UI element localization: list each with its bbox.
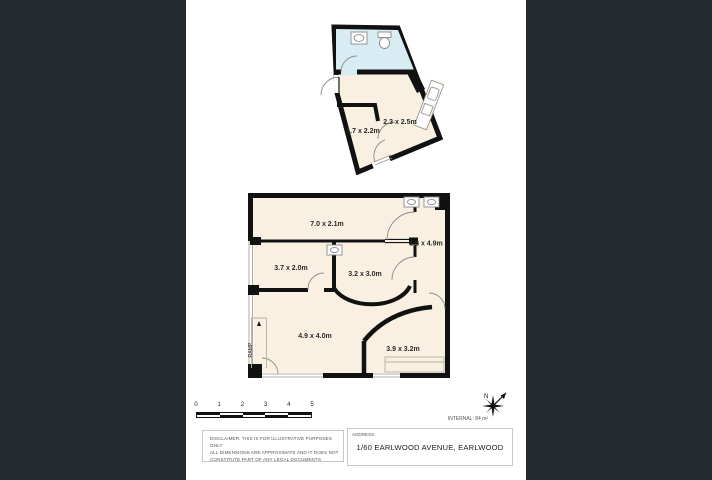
sink-basin-icon xyxy=(408,199,416,204)
bathroom-door-gap xyxy=(341,69,357,76)
scale-tick: 2 xyxy=(241,402,244,408)
room-label: 1.7 x 2.2m xyxy=(346,128,379,135)
disclaimer-box: DISCLAIMER: THIS IS FOR ILLUSTRATIVE PUR… xyxy=(202,430,344,462)
scale-tick: 4 xyxy=(287,402,290,408)
ramp-label: RAMP xyxy=(248,342,254,358)
address-label: ADDRESS: xyxy=(352,432,376,437)
scale-tick: 0 xyxy=(194,402,197,408)
scale-tick: 1 xyxy=(218,402,221,408)
screenshot-background: 2.3 x 2.5m 1.7 x 2.2m xyxy=(0,0,712,480)
room-label: 4.9 x 4.0m xyxy=(298,333,331,340)
disclaimer-line: ALL DIMENSIONS ARE APPROXIMATE AND IT DO… xyxy=(210,449,343,456)
room-label: 3.9 x 3.2m xyxy=(386,346,419,353)
toilet-tank-icon xyxy=(378,32,391,38)
scale-bar: 0 1 2 3 4 5 xyxy=(196,402,312,420)
wall-block xyxy=(250,237,261,245)
scale-bar-graphic xyxy=(196,412,312,418)
floorplan-sheet: 2.3 x 2.5m 1.7 x 2.2m xyxy=(186,0,526,480)
address-box: ADDRESS: 1/60 EARLWOOD AVENUE, EARLWOOD xyxy=(347,428,513,466)
internal-area-note: INTERNAL: 84 m² xyxy=(382,416,488,422)
room-label: 1.8 x 4.9m xyxy=(409,241,442,248)
disclaimer-line: DISCLAIMER: THIS IS FOR ILLUSTRATIVE PUR… xyxy=(210,435,343,449)
scale-tick: 3 xyxy=(264,402,267,408)
sink-basin-icon xyxy=(354,35,364,42)
sink-basin-icon xyxy=(428,199,436,204)
room-label: 3.7 x 2.0m xyxy=(274,265,307,272)
address-value: 1/60 EARLWOOD AVENUE, EARLWOOD xyxy=(348,443,512,452)
main-floor-plan: RAMP 7.0 x 2.1m 1.8 x 4.9m 3.7 x 2.0m 3.… xyxy=(246,191,452,380)
room-label: 2.3 x 2.5m xyxy=(383,119,416,126)
room-label: 7.0 x 2.1m xyxy=(310,221,343,228)
scale-tick: 5 xyxy=(310,402,313,408)
room-label: 3.2 x 3.0m xyxy=(348,271,381,278)
wall-block xyxy=(248,364,262,378)
sink-basin-icon xyxy=(331,247,339,252)
compass-north-label: N xyxy=(484,394,488,400)
upper-floor-plan: 2.3 x 2.5m 1.7 x 2.2m xyxy=(317,23,453,175)
scale-bar-ticks: 0 1 2 3 4 5 xyxy=(196,402,312,410)
disclaimer-line: CONSTITUTE PART OF ANY LEGAL DOCUMENTS xyxy=(210,456,343,463)
toilet-icon xyxy=(380,38,390,49)
